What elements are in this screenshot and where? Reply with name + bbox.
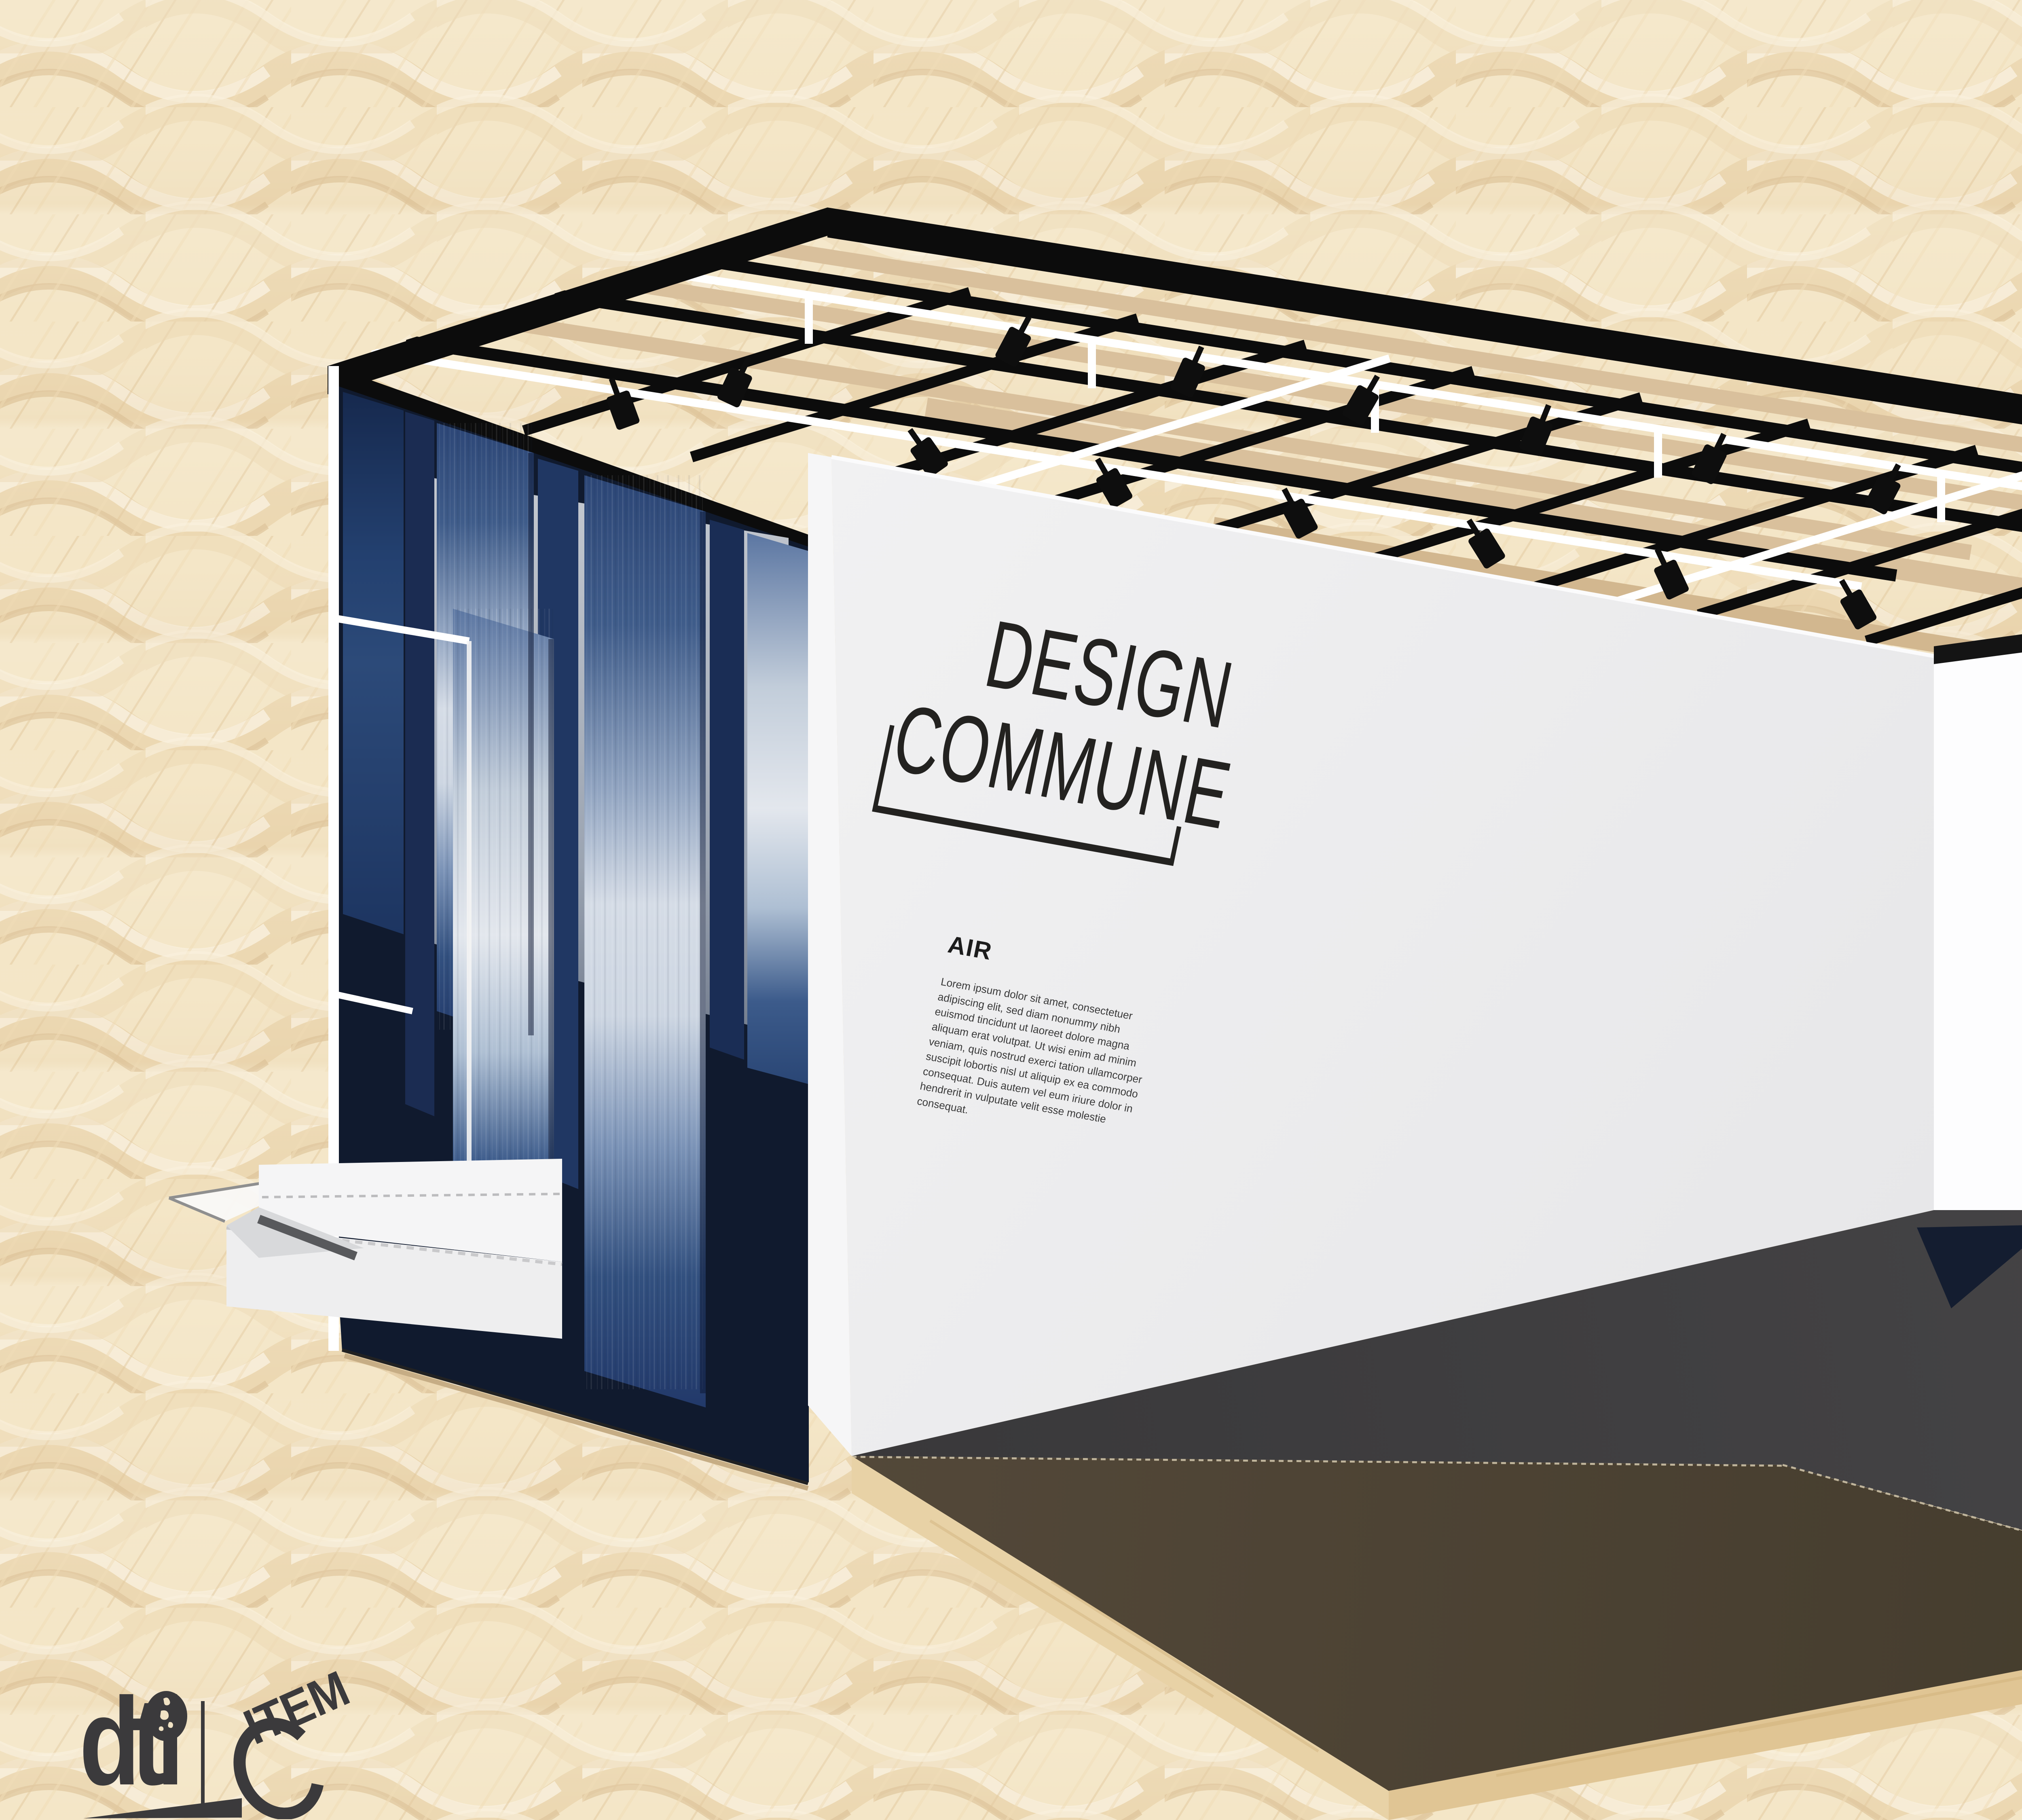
presentation-slide: DESIGN COMMUNE AIR Lorem ipsum dolor sit… [0, 0, 2022, 1820]
booth-3d-render [0, 0, 2022, 1820]
organizer-separator [201, 1701, 205, 1811]
citem-letters: ITEM [236, 1670, 356, 1755]
interior-wall-front [1934, 635, 2022, 1210]
citem-logo: ITEM [218, 1670, 364, 1819]
interior-rooms [1934, 625, 2022, 1210]
dti-globe-icon [144, 1690, 188, 1742]
